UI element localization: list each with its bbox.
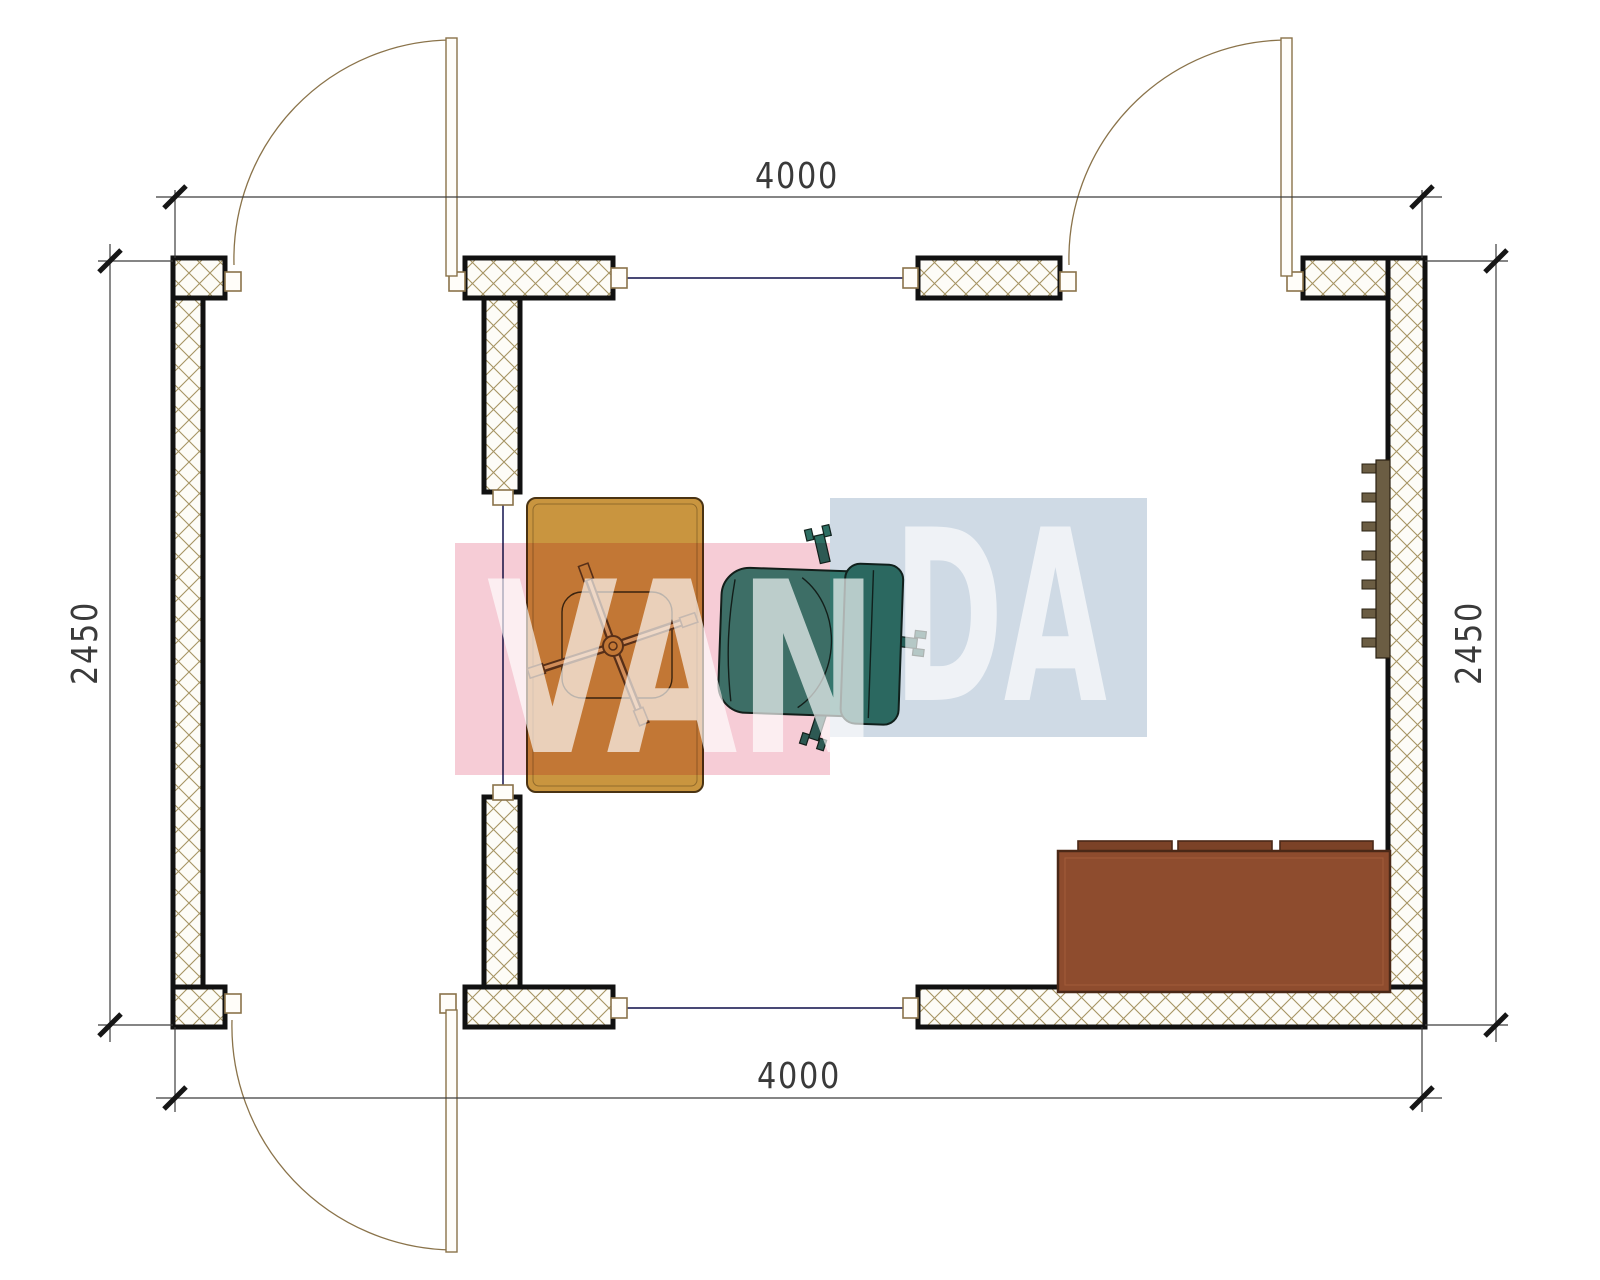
watermark-text-left: VAN [487, 532, 879, 809]
sofa-body [1058, 851, 1390, 992]
door-top-right-leaf [1281, 38, 1292, 276]
wall-left [173, 258, 203, 1027]
floor-plan-canvas: 4000 4000 2450 2450 VAN DA [0, 0, 1600, 1280]
wall-top-middle-segment [918, 258, 1060, 298]
window-top-frame-right [903, 268, 918, 288]
window-bottom-frame-left [611, 998, 627, 1018]
window-bottom-frame-right [903, 998, 918, 1018]
wall-top-left-segment [465, 258, 613, 298]
sofa [1058, 841, 1390, 992]
radiator-panel [1376, 460, 1390, 658]
dim-text-top: 4000 [755, 156, 839, 197]
watermark-text-right: DA [893, 480, 1107, 757]
wall-partition-upper-leg [484, 298, 520, 492]
door-bottom-left-jamb-left [225, 994, 241, 1013]
door-bottom-left-leaf [446, 1010, 457, 1252]
wall-left-bottom-jamb [173, 987, 225, 1027]
door-top-left-leaf [446, 38, 457, 276]
dim-text-left: 2450 [65, 601, 106, 685]
floor-plan-page: 4000 4000 2450 2450 VAN DA [0, 0, 1600, 1280]
wall-bottom-left-segment [465, 987, 613, 1027]
dim-text-right: 2450 [1449, 601, 1490, 685]
window-partition-frame-top [493, 490, 513, 505]
door-top-left-jamb-left [225, 272, 241, 291]
door-top-right-jamb-left [1060, 272, 1076, 291]
wall-partition-lower-leg [484, 797, 520, 987]
wall-left-top-jamb [173, 258, 225, 298]
dim-text-bottom: 4000 [757, 1056, 841, 1097]
window-top-frame-left [611, 268, 627, 288]
wall-right [1388, 258, 1425, 1027]
